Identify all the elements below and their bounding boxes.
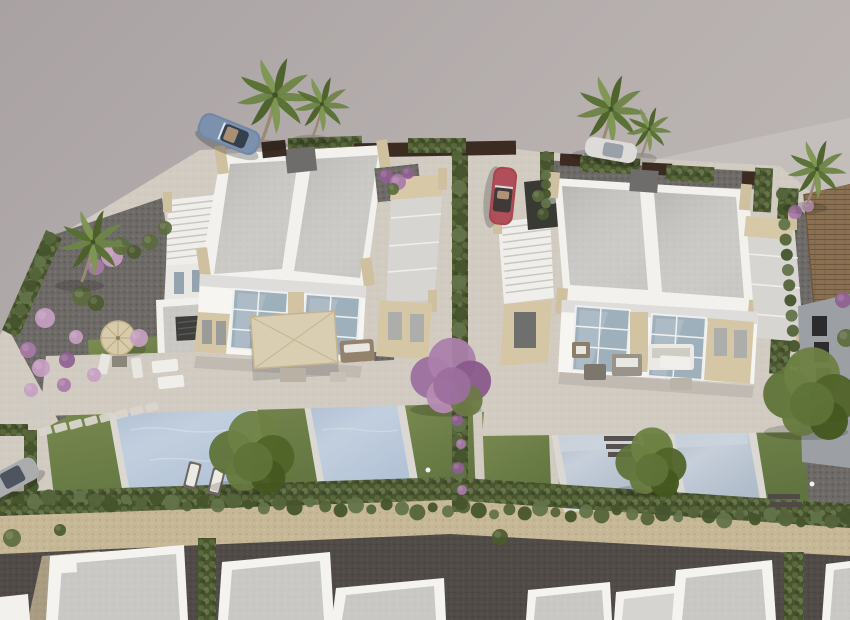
hedge-bump	[74, 490, 86, 502]
hedge-north-5	[753, 168, 773, 213]
hedge-bump	[579, 504, 593, 518]
render-canvas: Aerial 3D architectural render of a resi…	[0, 0, 850, 620]
hedge-bump	[452, 293, 463, 304]
hedge-bump	[784, 294, 796, 306]
hedge-bump	[211, 498, 225, 512]
hedge-bump	[763, 507, 777, 521]
hedge-bump	[102, 496, 118, 512]
bottom-house	[46, 545, 188, 620]
hedge-bump	[455, 260, 468, 273]
concrete-pad	[28, 406, 46, 418]
hedge-bump	[626, 508, 638, 520]
stone-pillar	[163, 192, 172, 212]
hedge-bump	[452, 275, 467, 290]
palm-crown	[815, 167, 819, 171]
hedge-bump	[15, 304, 27, 316]
curtain-window	[714, 328, 727, 356]
hedge-bump	[776, 188, 788, 200]
hedge-bump	[381, 498, 393, 510]
bush-highlight	[38, 311, 47, 320]
curtain-window	[734, 330, 747, 358]
hedge-bump	[244, 499, 254, 509]
hedge-bump	[39, 244, 51, 256]
hedge-bump	[225, 492, 241, 508]
hedge-bump	[541, 199, 551, 209]
hedge-bump	[24, 280, 36, 292]
hedge-bump	[334, 503, 348, 517]
hedge-bump	[489, 509, 499, 519]
tree-foliage	[233, 442, 273, 482]
hedge-north-4	[666, 165, 715, 183]
hedge-bump	[164, 494, 180, 510]
outdoor-table	[280, 368, 306, 382]
hedge-bump	[442, 505, 454, 517]
bush-highlight	[404, 169, 409, 174]
bush-highlight	[132, 331, 140, 339]
dark-door	[514, 312, 536, 348]
hedge-bump	[702, 509, 716, 523]
hedge-bump	[780, 234, 792, 246]
hedge-bump	[452, 228, 467, 243]
hedge-bump	[366, 504, 376, 514]
hedge-bump	[149, 491, 163, 505]
palm-shadow	[290, 135, 332, 147]
hedge-bottom-col-1	[198, 538, 216, 620]
window	[174, 272, 184, 294]
bush-highlight	[392, 176, 399, 183]
hedge-bump	[778, 218, 790, 230]
hedge-bump	[541, 151, 551, 161]
bottom-house	[672, 560, 776, 620]
hedge-bump	[319, 500, 331, 512]
hedge-bump	[503, 503, 515, 515]
garden-table	[112, 356, 127, 367]
hedge-bump	[612, 505, 622, 515]
hedge-bump	[135, 497, 147, 509]
hedge-bump	[688, 506, 700, 518]
stone-clad-wall	[704, 318, 754, 384]
car-interior	[497, 190, 510, 199]
wicker-sofa	[339, 339, 374, 363]
bush-highlight	[26, 385, 32, 391]
hedge-bump	[44, 232, 56, 244]
hedge-bottom-col-2	[784, 552, 804, 620]
stone-pillar	[438, 168, 447, 190]
hedge-bump	[258, 502, 270, 514]
hedge-bump	[783, 279, 795, 291]
bush-highlight	[89, 370, 95, 376]
curtain-window	[410, 314, 424, 342]
hedge-bump	[10, 316, 22, 328]
hedge-bump	[452, 322, 467, 337]
bush-highlight	[90, 297, 97, 304]
hedge-bump	[305, 497, 315, 507]
palm-crown	[272, 92, 278, 98]
hedge-bump	[518, 506, 532, 520]
hedge-bump	[565, 510, 577, 522]
hedge-bump	[455, 165, 468, 178]
hedge-bump	[88, 493, 102, 507]
pouf	[670, 378, 692, 390]
hedge-bump	[781, 249, 793, 261]
bush-highlight	[457, 440, 462, 445]
hedge-bump	[782, 264, 794, 276]
bush-highlight	[534, 192, 539, 197]
bush-highlight	[837, 294, 844, 301]
cushion	[616, 358, 638, 367]
bush-highlight	[839, 331, 847, 339]
hedge-bump	[541, 170, 551, 180]
palm-crown	[608, 106, 613, 111]
hedge-bump	[452, 198, 463, 209]
hedge-bump	[29, 268, 41, 280]
bush-highlight	[34, 361, 42, 369]
palm-shadow	[55, 280, 104, 292]
stone-clad-wall	[500, 300, 552, 366]
hedge-bump	[455, 308, 468, 321]
bush-highlight	[539, 210, 544, 215]
hedge-bump	[541, 161, 551, 171]
storage-box	[584, 364, 606, 380]
hedge-bump	[749, 513, 761, 525]
sun-lounger	[660, 355, 691, 370]
bush-highlight	[71, 332, 77, 338]
curtain-window	[388, 312, 402, 340]
hedge-bump	[34, 256, 46, 268]
garden-lamp	[810, 482, 815, 487]
bottom-house	[822, 561, 850, 620]
bush-highlight	[389, 185, 394, 190]
hedge-bump	[641, 511, 655, 525]
hedge-bump	[788, 340, 800, 352]
hedge-bump	[787, 325, 799, 337]
house-corner-wall	[0, 594, 30, 620]
bush-highlight	[56, 526, 61, 531]
hedge-bump	[25, 431, 36, 442]
hedge-bump	[272, 496, 286, 510]
palm-crown	[320, 102, 324, 106]
outdoor-shower	[426, 468, 431, 473]
tree-foliage	[636, 454, 669, 487]
hedge-bump	[452, 151, 463, 162]
bush-highlight	[59, 380, 65, 386]
hedge-bump	[452, 180, 467, 195]
stone-pillar	[739, 184, 752, 211]
hedge-bump	[287, 499, 303, 515]
hedge-bump	[348, 497, 364, 513]
hedge-bump	[196, 495, 208, 507]
bush-highlight	[61, 354, 68, 361]
hedge-bump	[778, 510, 794, 526]
hedge-bump	[541, 180, 551, 190]
tree-foliage	[433, 367, 470, 404]
bush-highlight	[458, 486, 463, 491]
bush-highlight	[454, 464, 459, 469]
aerial-render: Aerial 3D architectural render of a resi…	[0, 0, 850, 620]
bush-highlight	[160, 223, 166, 229]
curtain-window	[202, 320, 212, 344]
side-table	[330, 372, 346, 382]
hedge-bump	[455, 450, 468, 463]
hedge-bump	[452, 245, 463, 256]
bush-highlight	[22, 344, 29, 351]
stone-clad-wall	[194, 312, 230, 354]
palm-shadow	[783, 202, 827, 214]
bush-highlight	[129, 247, 135, 253]
palm-crown	[647, 127, 650, 130]
bottom-house	[218, 552, 334, 620]
bush-highlight	[5, 531, 13, 539]
hedge-bump	[655, 505, 671, 521]
hedge-bump	[716, 512, 732, 528]
hedge-bump	[25, 443, 36, 454]
hedge-bump	[455, 213, 468, 226]
bush-highlight	[144, 236, 151, 243]
hedge-bump	[20, 292, 32, 304]
curtain-window	[216, 321, 226, 345]
hedge-bump	[455, 497, 468, 510]
hedge-bump	[825, 514, 839, 528]
ac-unit	[629, 169, 658, 193]
hedge-bump	[471, 502, 487, 518]
hedge-bump	[532, 500, 548, 516]
cushion	[576, 346, 586, 354]
hedge-bump	[593, 507, 609, 523]
hedge-bump	[182, 501, 192, 511]
hedge-bump	[59, 496, 69, 506]
hedge-bump	[409, 504, 425, 520]
hedge-bump	[428, 502, 438, 512]
palm-crown	[91, 240, 96, 245]
hedge-bump	[796, 517, 806, 527]
hedge-bump	[786, 310, 798, 322]
tree-foliage	[790, 382, 834, 426]
hedge-bump	[29, 494, 40, 505]
hedge-bump	[121, 494, 131, 504]
hedge-bump	[810, 511, 822, 523]
ac-unit	[285, 146, 317, 173]
bush-highlight	[381, 171, 387, 177]
hedge-bump	[673, 512, 683, 522]
hedge-carport-2	[0, 424, 28, 436]
stone-clad-wall	[376, 300, 432, 360]
hedge-bump	[41, 489, 57, 505]
bush-highlight	[494, 531, 501, 538]
hedge-bump	[735, 510, 745, 520]
dark-window	[812, 316, 827, 336]
hedge-bump	[550, 507, 560, 517]
hedge-bump	[395, 501, 409, 515]
